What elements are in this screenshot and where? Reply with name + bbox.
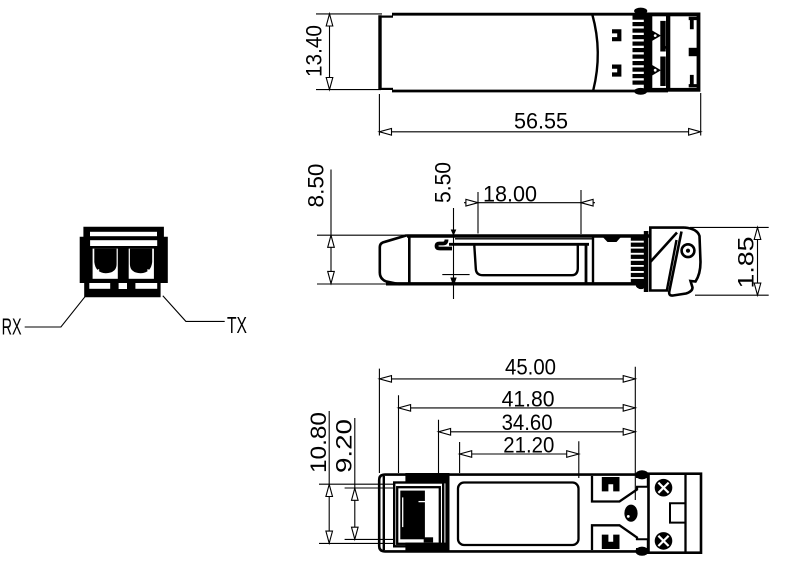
- svg-text:5.50: 5.50: [431, 162, 456, 203]
- svg-text:13.40: 13.40: [302, 25, 327, 77]
- svg-text:TX: TX: [227, 312, 247, 338]
- svg-text:10.80: 10.80: [306, 412, 331, 473]
- svg-text:21.20: 21.20: [503, 433, 554, 458]
- svg-text:34.60: 34.60: [502, 410, 553, 435]
- svg-text:RX: RX: [2, 314, 22, 340]
- svg-text:41.80: 41.80: [502, 386, 555, 411]
- svg-text:45.00: 45.00: [505, 354, 556, 379]
- svg-text:18.00: 18.00: [483, 182, 537, 207]
- svg-text:56.55: 56.55: [514, 109, 568, 134]
- svg-text:1.85: 1.85: [734, 237, 759, 289]
- svg-text:9.20: 9.20: [332, 419, 357, 473]
- svg-text:8.50: 8.50: [304, 164, 329, 208]
